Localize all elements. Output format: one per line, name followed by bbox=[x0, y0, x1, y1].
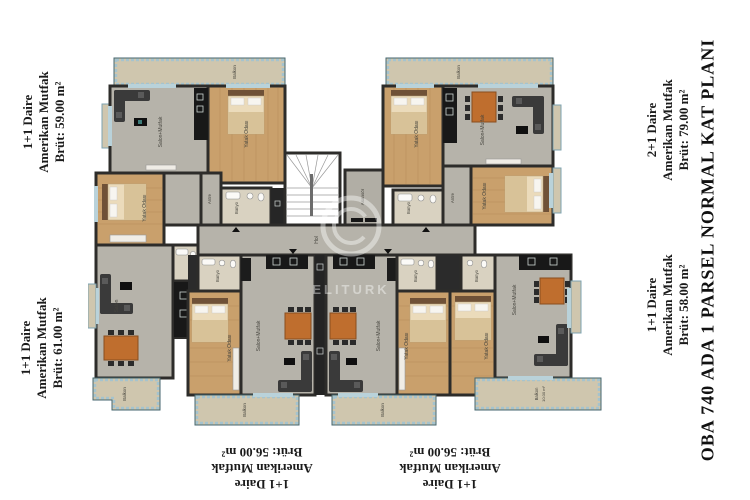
balcony: Balkon bbox=[93, 378, 160, 410]
central-shaft bbox=[315, 255, 326, 395]
room-label-balcony: Balkon bbox=[534, 387, 539, 400]
unit-type: 1+1 Daire bbox=[18, 297, 34, 398]
tv bbox=[538, 336, 549, 343]
window bbox=[128, 84, 176, 88]
tv bbox=[346, 358, 357, 365]
mini-balcony bbox=[571, 281, 581, 333]
window bbox=[108, 106, 112, 146]
unit-type: 1+1 Daire bbox=[20, 71, 36, 172]
balcony: Balkon bbox=[332, 395, 436, 425]
room-label-bedroom: Yatak Odası bbox=[142, 194, 148, 221]
mini-balcony bbox=[88, 284, 96, 328]
window bbox=[94, 186, 98, 222]
apartment-mid-left: Balkon Salon Yatak Odası bbox=[88, 173, 201, 410]
dining-table bbox=[330, 307, 356, 345]
room-label-living: Salon+Mutfak bbox=[158, 116, 164, 147]
wardrobe bbox=[110, 235, 146, 242]
balcony: Balkon 10.00 m² bbox=[475, 378, 601, 410]
shaft bbox=[450, 255, 461, 291]
apartment-bottom-left: Banyo Yatak Odası bbox=[188, 255, 315, 425]
apartment-mid-right: Banyo Salon+Mutfak Yatak Odası bbox=[450, 255, 601, 410]
room-label-balcony: Balkon bbox=[456, 65, 461, 79]
kitchen-type: Amerikan Mutfak bbox=[399, 460, 500, 476]
gross-area: Brüt: 61.00 m² bbox=[50, 297, 66, 398]
room-label-bedroom: Yatak Odası bbox=[227, 334, 233, 361]
tv-wall bbox=[241, 258, 251, 281]
gross-area: Brüt: 58.00 m² bbox=[676, 254, 692, 355]
room-label-balcony-area: 10.00 m² bbox=[541, 385, 546, 401]
room-label-balcony: Balkon bbox=[380, 403, 385, 417]
room-label-bedroom: Yatak Odası bbox=[244, 120, 250, 147]
balcony: Balkon bbox=[114, 58, 285, 86]
kitchen-type: Amerikan Mutfak bbox=[34, 297, 50, 398]
window bbox=[338, 393, 378, 397]
page-title: OBA 740 ADA 1 PARSEL NORMAL KAT PLANI bbox=[698, 39, 719, 462]
shaft bbox=[271, 188, 285, 225]
room-label-living: Salon+Mutfak bbox=[512, 284, 518, 315]
window bbox=[508, 376, 553, 380]
bed bbox=[102, 184, 146, 220]
window bbox=[549, 173, 553, 208]
shaft bbox=[437, 255, 450, 291]
kitchen-counter bbox=[194, 88, 208, 140]
wardrobe bbox=[233, 348, 239, 390]
tv bbox=[120, 282, 132, 290]
kitchen-counter bbox=[443, 88, 457, 143]
apartment-bottom-right: Salon+Mutfak Banyo Yatak Odası Balkon bbox=[326, 255, 450, 425]
room-label-hall: Hol bbox=[314, 236, 320, 244]
label-apartment-mid-right: 1+1 Daire Amerikan Mutfak Brüt: 58.00 m² bbox=[644, 254, 692, 355]
label-apartment-bottom-left: 1+1 Daire Amerikan Mutfak Brüt: 56.00 m² bbox=[211, 444, 312, 492]
staircase bbox=[285, 153, 340, 225]
apartment-top-right: Balkon bbox=[383, 58, 561, 225]
room-label-living: Salon+Mutfak bbox=[480, 114, 486, 145]
balcony: Balkon bbox=[386, 58, 553, 86]
label-apartment-bottom-right: 1+1 Daire Amerikan Mutfak Brüt: 56.00 m² bbox=[399, 444, 500, 492]
kitchen-counter bbox=[266, 255, 308, 269]
bed bbox=[391, 90, 427, 134]
room-label-bedroom: Yatak Odası bbox=[414, 120, 420, 147]
room-label-bedroom: Yatak Odası bbox=[484, 332, 490, 359]
window bbox=[567, 288, 571, 328]
bed bbox=[505, 176, 549, 212]
room-label-bathroom: Banyo bbox=[474, 269, 479, 282]
room-label-balcony: Balkon bbox=[122, 387, 127, 401]
window bbox=[478, 84, 538, 88]
floor-plan-page: 1+1 Daire Amerikan Mutfak Brüt: 59.00 m²… bbox=[0, 0, 750, 500]
mini-balcony bbox=[553, 168, 561, 213]
kitchen-type: Amerikan Mutfak bbox=[660, 254, 676, 355]
label-apartment-mid-left: 1+1 Daire Amerikan Mutfak Brüt: 61.00 m² bbox=[18, 297, 66, 398]
balcony: Balkon bbox=[195, 395, 299, 425]
kitchen-type: Amerikan Mutfak bbox=[36, 71, 52, 172]
unit-type: 1+1 Daire bbox=[211, 476, 312, 492]
room-entry bbox=[443, 166, 471, 225]
tv-screen bbox=[138, 120, 142, 124]
room-label-entry: Antre bbox=[207, 193, 212, 204]
room-label-living: Salon+Mutfak bbox=[376, 320, 382, 351]
room-entry bbox=[164, 173, 201, 225]
room-label-living: Salon bbox=[114, 299, 120, 312]
room-label-entry: Antre bbox=[450, 192, 455, 203]
tv bbox=[284, 358, 295, 365]
mini-balcony bbox=[553, 105, 561, 150]
kitchen-counter bbox=[333, 255, 375, 269]
window bbox=[396, 84, 434, 88]
label-apartment-top-right: 2+1 Daire Amerikan Mutfak Brüt: 79.00 m² bbox=[644, 79, 692, 180]
unit-type: 1+1 Daire bbox=[399, 476, 500, 492]
label-apartment-top-left: 1+1 Daire Amerikan Mutfak Brüt: 59.00 m² bbox=[20, 71, 68, 172]
room-label-bathroom: Banyo bbox=[406, 201, 411, 214]
dining-table bbox=[285, 307, 311, 345]
window bbox=[226, 84, 270, 88]
gross-area: Brüt: 59.00 m² bbox=[52, 71, 68, 172]
room-label-balcony: Balkon bbox=[242, 403, 247, 417]
room-label-balcony: Balkon bbox=[232, 65, 237, 79]
room-label-living: Salon+Mutfak bbox=[256, 320, 262, 351]
watermark-text: ELITURK bbox=[312, 282, 389, 297]
console bbox=[146, 165, 176, 170]
console bbox=[486, 159, 521, 164]
floor-plan-drawing: Balkon bbox=[88, 48, 648, 448]
gross-area: Brüt: 79.00 m² bbox=[676, 79, 692, 180]
stair-rail bbox=[310, 174, 313, 216]
kitchen-type: Amerikan Mutfak bbox=[211, 460, 312, 476]
tv bbox=[516, 126, 528, 134]
window bbox=[96, 288, 99, 324]
kitchen-counter bbox=[519, 255, 571, 270]
room-label-bedroom-2: Yatak Odası bbox=[482, 182, 488, 209]
window bbox=[253, 393, 293, 397]
bed bbox=[410, 298, 446, 342]
room-label-bathroom: Banyo bbox=[234, 201, 239, 214]
kitchen-type: Amerikan Mutfak bbox=[660, 79, 676, 180]
room-label-bedroom: Yatak Odası bbox=[404, 332, 410, 359]
room-label-bathroom: Banyo bbox=[413, 269, 418, 282]
bed bbox=[192, 298, 228, 342]
room-label-bathroom: Banyo bbox=[215, 269, 220, 282]
